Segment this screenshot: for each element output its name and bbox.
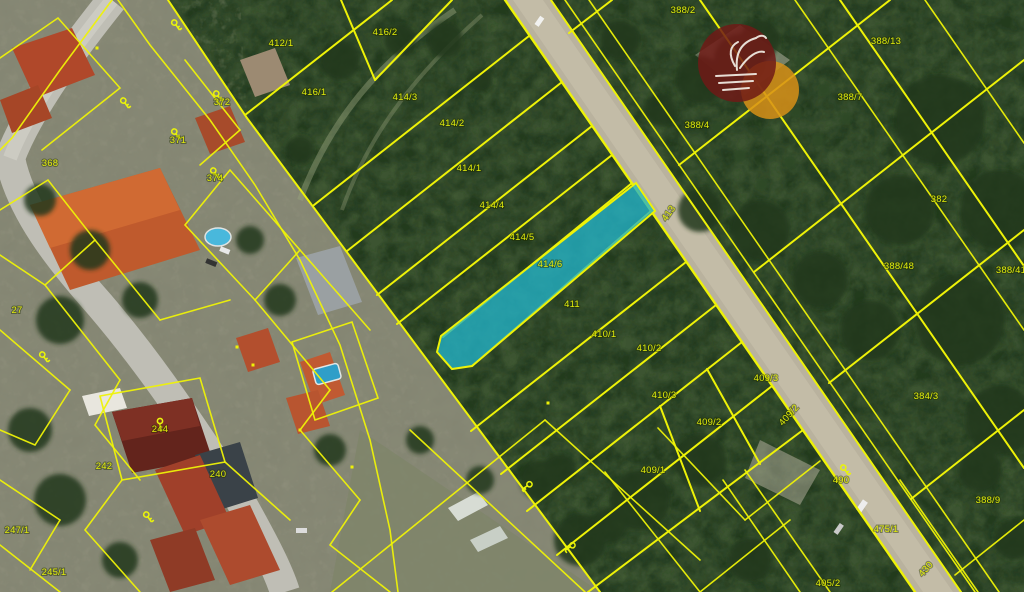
parcel-label: 411 [564,299,580,310]
parcel-centroid-dot [547,402,550,405]
parcel-label: 414/5 [510,232,535,243]
parcel-label: 374 [207,173,223,184]
parcel-label: 247/1 [5,525,30,536]
parcel-label: 475/1 [874,524,899,535]
parcel-label: 242 [96,461,112,472]
parcel-label: 405/2 [816,578,841,589]
parcel-label: 240 [210,469,226,480]
parcel-label: 388/4 [685,120,710,131]
parcel-label: 490 [833,475,849,486]
parcel-centroid-dot [299,429,302,432]
parcel-label: 410/1 [592,329,617,340]
map-viewport[interactable]: 412/1416/2416/1414/3414/2414/1414/4414/5… [0,0,1024,592]
parcel-centroid-dot [96,47,99,50]
parcel-label: 382 [931,194,947,205]
parcel-label: 372 [214,97,230,108]
parcel-label: 409/1 [641,465,666,476]
parcel-label: 388/48 [884,261,914,272]
parcel-label: 245/1 [42,567,67,578]
parcel-label: 27 [12,305,23,316]
parcel-label: 414/4 [480,200,505,211]
parcel-label: 388/9 [976,495,1001,506]
parcel-label: 416/2 [373,27,398,38]
parcel-label: 414/1 [457,163,482,174]
parcel-label: 412/1 [269,38,294,49]
parcel-label: 414/6 [538,259,563,270]
parcel-label: 244 [152,424,168,435]
parcel-centroid-dot [351,466,354,469]
parcel-centroid-dot [252,364,255,367]
parcel-centroid-dot [236,346,239,349]
parcel-label: 409/2 [697,417,722,428]
cadastral-map[interactable]: 412/1416/2416/1414/3414/2414/1414/4414/5… [0,0,1024,592]
parcel-label: 410/2 [637,343,662,354]
parcel-label: 414/3 [393,92,418,103]
parcel-label: 388/7 [838,92,863,103]
parcel-label: 368 [42,158,58,169]
parcel-label: 414/2 [440,118,465,129]
parcel-label: 384/3 [914,391,939,402]
parcel-label: 410/3 [652,390,677,401]
parcel-label: 409/3 [754,373,779,384]
parcel-label: 388/41 [996,265,1024,276]
parcel-label: 416/1 [302,87,327,98]
parcel-label: 371 [170,135,186,146]
parcel-label: 388/2 [671,5,696,16]
parcel-label: 388/13 [871,36,901,47]
